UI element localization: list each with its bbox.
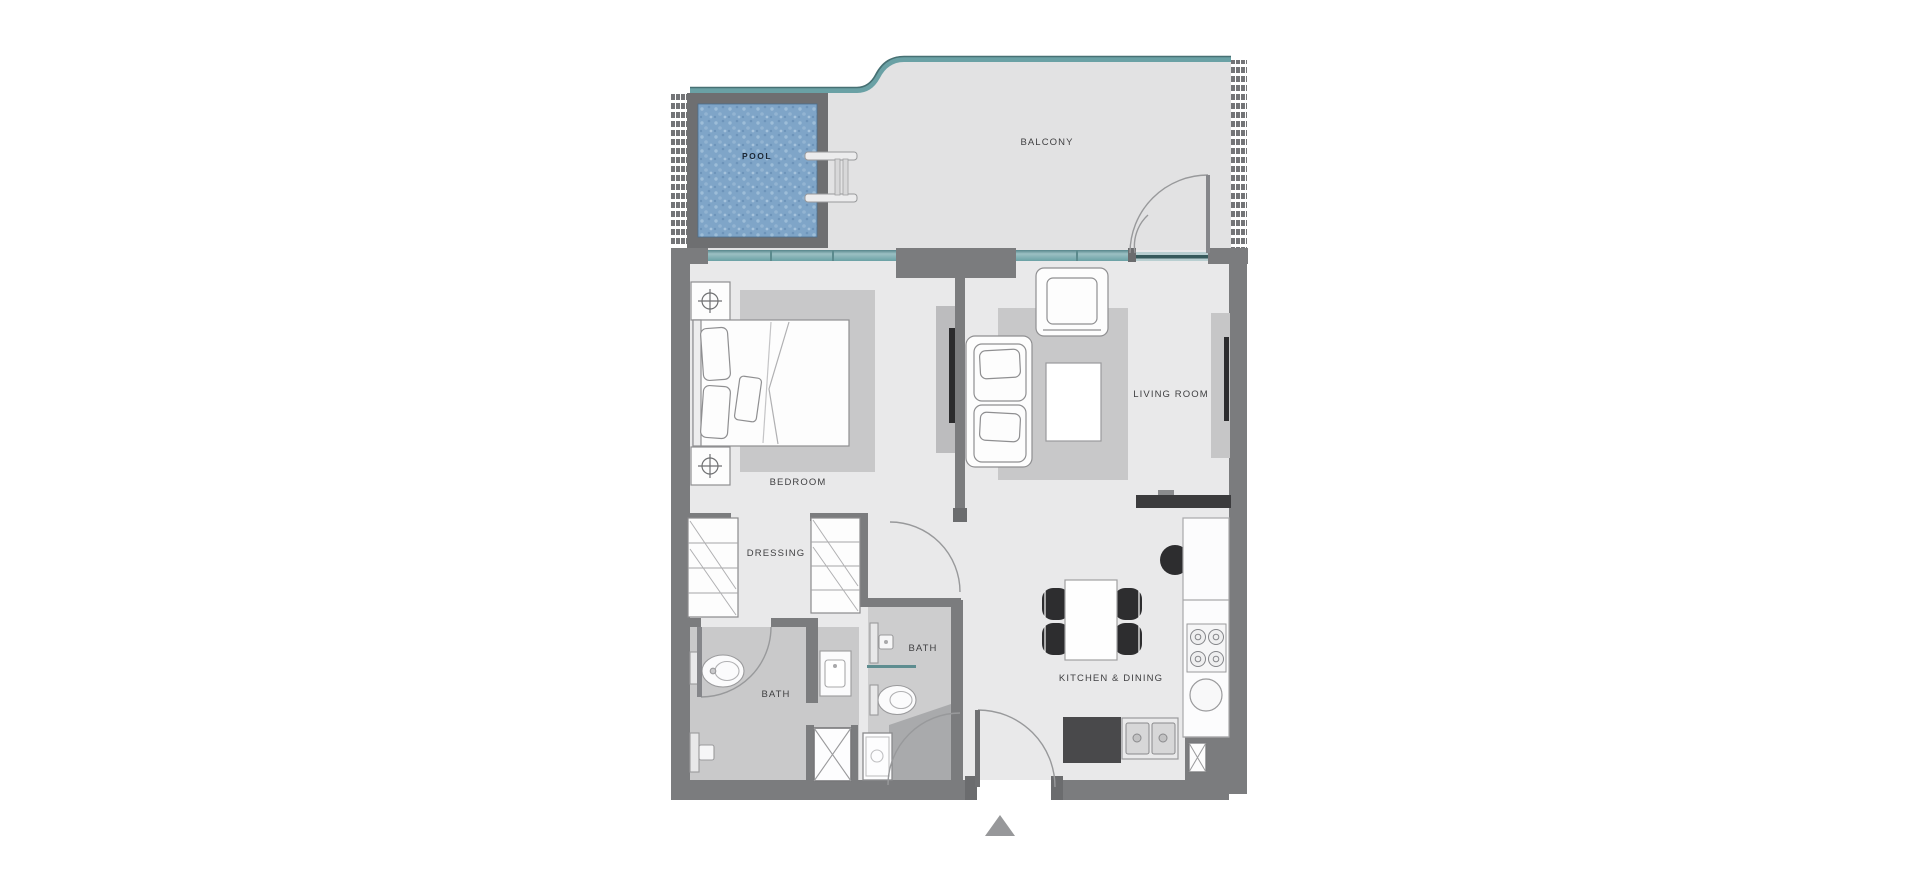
louver-screen-left [671,93,688,245]
dining-chair [1114,588,1142,620]
room-label-kitchen-dining: KITCHEN & DINING [1059,673,1163,684]
armchair [1036,268,1108,336]
toilet-icon [702,655,744,687]
wall-bottom-right [1053,780,1229,800]
wall-left [671,250,690,800]
room-label-dressing: DRESSING [747,548,805,559]
wall-bath1-top-a [688,618,701,627]
coffee-table [1046,363,1101,441]
living-room-window [1016,250,1135,261]
page-background: { "plan": { "rooms": { "pool": { "label"… [0,0,1920,892]
breakfast-bar-tab [1158,490,1174,495]
room-label-bath2: BATH [908,643,937,654]
toilet-cistern [870,685,878,715]
wall-right [1229,250,1247,794]
room-label-bath1: BATH [761,689,790,700]
wall-shower-right [851,725,858,780]
room-label-bedroom: BEDROOM [770,477,827,488]
entrance-arrow-icon [985,815,1015,836]
dining-chair [1114,623,1142,655]
bedroom-window [708,250,896,261]
kitchen-counter-dark [1063,717,1121,763]
bath1-door-leaf [697,627,702,697]
basin-counter [870,623,878,663]
kitchen-counter-right [1183,518,1229,737]
entry-door-leaf [975,710,980,787]
nightstand-top [691,282,730,320]
wall-bottom-left [671,780,975,800]
wall-hall-kitchen-divider [951,600,963,780]
basin-faucet [884,640,888,644]
toilet-flush [710,668,716,674]
bath1-basin-counter [820,651,851,696]
dining-set [1042,580,1142,660]
floor-plan: POOL BALCONY BEDROOM LIVING ROOM DRESSIN… [671,49,1250,839]
balcony-door-track [1135,255,1208,259]
service-shaft-icon [1189,743,1206,772]
bedroom-tv-icon [949,328,955,423]
nightstand-bottom [691,447,730,485]
living-tv-icon [1224,337,1229,421]
shower-icon [814,728,851,781]
wall-cap-divider [953,508,967,522]
wall-wardrobe-bath2 [860,513,868,607]
wardrobe-right [811,518,860,613]
wardrobe-left [688,518,738,617]
window-mullion [770,250,772,261]
hob-icon [1187,624,1226,672]
window-mullion [832,250,834,261]
toilet-icon [878,686,916,715]
breakfast-bar [1136,495,1231,508]
vanity-basin-icon [699,745,714,760]
double-sink-icon [1122,718,1178,759]
wall-bath1-mid [806,618,818,703]
pool-water [698,104,817,237]
floor-plan-drawing: POOL BALCONY BEDROOM LIVING ROOM DRESSIN… [671,49,1250,839]
wall-shower-left [806,725,814,780]
room-label-pool: POOL [742,151,772,161]
room-label-living-room: LIVING ROOM [1133,389,1208,400]
entry-door-jamb-right [1051,776,1063,800]
dining-table [1065,580,1117,660]
balcony-door-leaf [1206,175,1210,253]
vanity-counter [690,733,699,772]
wall-bedroom-living-divider [955,264,965,522]
washing-machine-icon [863,733,892,780]
wall-bath2-top [865,598,961,607]
louver-screen-right [1231,60,1247,250]
shower-screen-glass [867,665,916,668]
bed [693,320,849,446]
window-mullion [1076,250,1078,261]
sofa [966,336,1032,467]
round-sink-icon [1190,679,1222,711]
room-label-balcony: BALCONY [1020,137,1073,148]
